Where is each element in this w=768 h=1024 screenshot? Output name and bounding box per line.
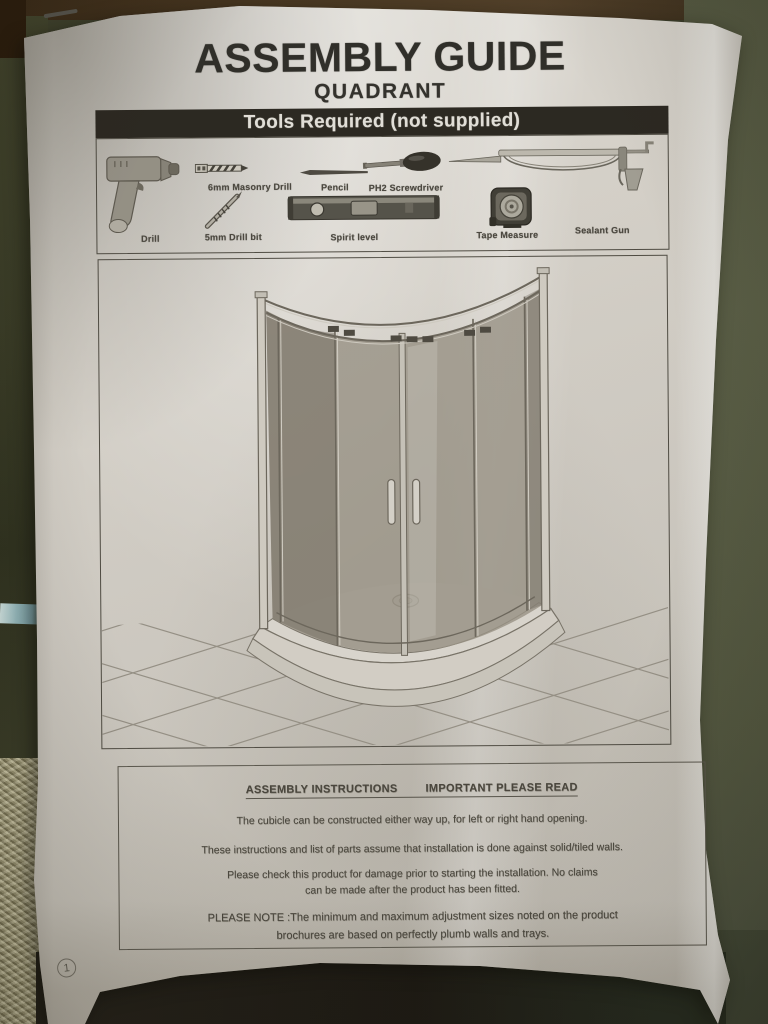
power-drill-icon [105, 147, 184, 234]
sealant-gun-icon [449, 141, 655, 193]
instructions-heading-left: ASSEMBLY INSTRUCTIONS [246, 783, 398, 796]
assembly-instructions-panel: ASSEMBLY INSTRUCTIONS IMPORTANT PLEASE R… [118, 761, 707, 950]
ph2-screwdriver-icon [363, 149, 443, 178]
tool-pencil [300, 163, 368, 182]
drill-bit-icon [203, 190, 247, 230]
page-subtitle: QUADRANT [80, 78, 680, 107]
tool-label-spirit-level: Spirit level [330, 232, 378, 242]
tool-spirit-level [287, 191, 441, 229]
instruction-paragraph: The cubicle can be constructed either wa… [142, 810, 682, 831]
tool-drill-bit [203, 190, 247, 235]
instructions-heading: ASSEMBLY INSTRUCTIONS IMPORTANT PLEASE R… [246, 781, 578, 799]
product-diagram-panel [98, 255, 672, 749]
pencil-icon [300, 168, 368, 177]
instructions-heading-right: IMPORTANT PLEASE READ [425, 781, 577, 794]
page-number-badge: 1 [56, 957, 77, 978]
quadrant-enclosure-diagram [99, 256, 670, 747]
tool-masonry-drill [195, 160, 249, 181]
tools-required-header: Tools Required (not supplied) [95, 106, 668, 138]
tool-drill [105, 147, 184, 239]
tool-label-drill: Drill [141, 234, 160, 244]
tool-label-sealant-gun: Sealant Gun [575, 225, 630, 235]
staple [44, 9, 78, 18]
tool-screwdriver [363, 149, 443, 183]
page-title: ASSEMBLY GUIDE [80, 32, 680, 84]
tool-label-tape-measure: Tape Measure [476, 230, 538, 240]
instruction-paragraph: PLEASE NOTE :The minimum and maximum adj… [198, 907, 628, 946]
tools-panel: Drill 6mm Masonry Drill [96, 134, 670, 254]
spirit-level-icon [287, 191, 441, 224]
instruction-paragraph: These instructions and list of parts ass… [132, 838, 692, 859]
masonry-drill-bit-icon [195, 160, 249, 176]
instruction-paragraph: Please check this product for damage pri… [220, 864, 605, 901]
photo-of-assembly-guide: ASSEMBLY GUIDE QUADRANT Tools Required (… [0, 0, 768, 1024]
tool-sealant-gun [449, 141, 655, 198]
tool-label-drill-bit: 5mm Drill bit [205, 232, 262, 242]
printed-page: ASSEMBLY GUIDE QUADRANT Tools Required (… [0, 0, 768, 1024]
